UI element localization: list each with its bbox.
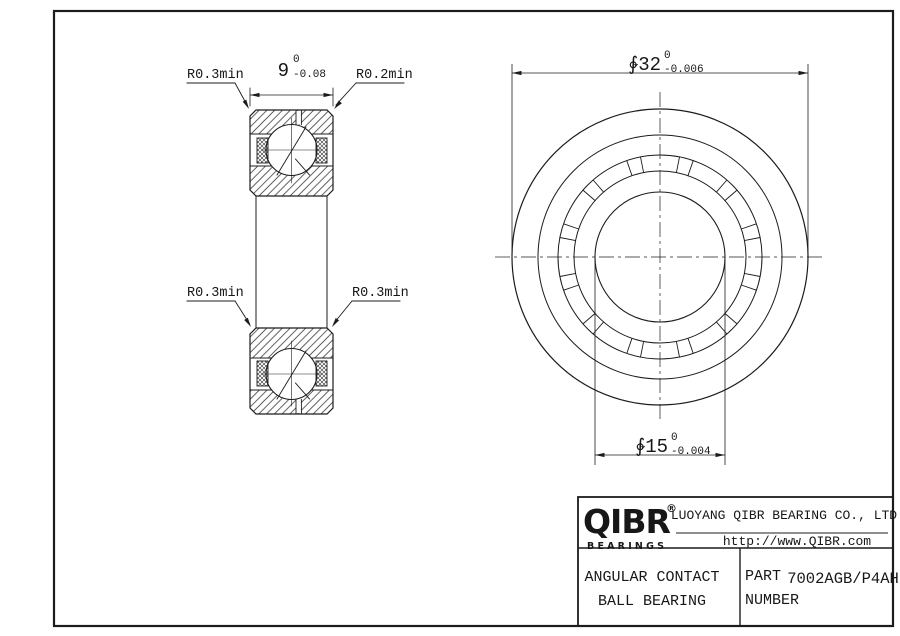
bore-dim-tol-upper: 0 [671, 432, 678, 444]
title-block: QIBR ® BEARINGS LUOYANG QIBR BEARING CO.… [578, 497, 899, 626]
section-top-half [250, 110, 333, 196]
radius-label-top-left: R0.3min [187, 68, 244, 83]
section-view: 9 0 -0.08 R0.3min R0.2min R0.3min R0.3mi… [187, 54, 413, 414]
radius-label-mid-left: R0.3min [187, 286, 244, 301]
width-dim-value: 9 [278, 60, 289, 82]
part-number: 7002AGB/P4AH [787, 570, 899, 588]
od-dim-value: ∲32 [628, 54, 661, 76]
width-dimension [250, 88, 333, 106]
radius-label-mid-right: R0.3min [352, 286, 409, 301]
od-dim-tol-upper: 0 [664, 50, 671, 62]
logo-text: QIBR [583, 502, 670, 541]
radius-label-top-right: R0.2min [356, 68, 413, 83]
cage-left-bottom [257, 361, 268, 386]
od-dim-tol-lower: -0.006 [664, 64, 704, 76]
product-name-line2: BALL BEARING [598, 593, 706, 610]
logo-subtitle: BEARINGS [587, 541, 667, 552]
drawing-sheet: 9 0 -0.08 R0.3min R0.2min R0.3min R0.3mi… [0, 0, 900, 636]
cage-right-bottom [316, 361, 327, 386]
qibr-logo: QIBR ® BEARINGS [583, 502, 677, 552]
part-label-line2: NUMBER [745, 592, 799, 609]
company-name: LUOYANG QIBR BEARING CO., LTD [671, 508, 897, 523]
bearing-drawing: 9 0 -0.08 R0.3min R0.2min R0.3min R0.3mi… [0, 0, 900, 636]
width-dim-tol-upper: 0 [293, 54, 300, 66]
front-view: ∲32 0 -0.006 ∲15 0 -0.004 [495, 50, 825, 465]
cage-right-top [316, 138, 327, 163]
width-dim-tol-lower: -0.08 [293, 69, 326, 81]
product-name-line1: ANGULAR CONTACT [584, 569, 719, 586]
part-label-line1: PART [745, 568, 781, 585]
bore-dim-tol-lower: -0.004 [671, 446, 711, 458]
bore-dim-value: ∲15 [635, 436, 668, 458]
groove-notch-top [296, 111, 301, 125]
section-bottom-half [250, 328, 333, 414]
company-website: http://www.QIBR.com [723, 534, 871, 549]
groove-notch-bottom [296, 400, 301, 414]
cage-left-top [257, 138, 268, 163]
